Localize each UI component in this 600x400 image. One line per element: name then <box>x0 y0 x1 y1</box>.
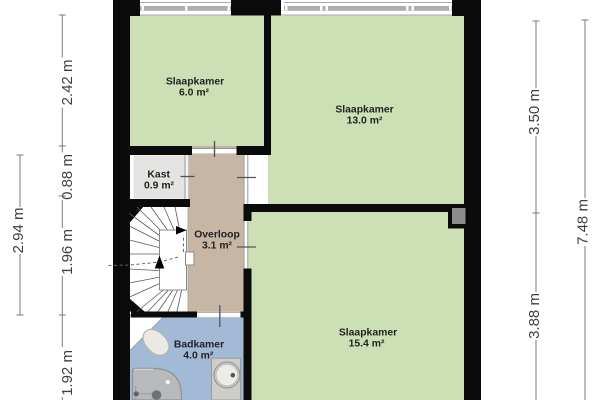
svg-text:7.48 m: 7.48 m <box>574 199 591 245</box>
svg-text:1.92 m: 1.92 m <box>59 350 76 396</box>
svg-text:15.4 m²: 15.4 m² <box>349 339 385 350</box>
svg-text:2.42 m: 2.42 m <box>59 60 76 106</box>
svg-text:Slaapkamer: Slaapkamer <box>339 328 397 339</box>
svg-text:3.50 m: 3.50 m <box>526 89 543 135</box>
svg-text:0.88 m: 0.88 m <box>59 154 76 200</box>
svg-text:0.9 m²: 0.9 m² <box>144 180 175 191</box>
svg-text:3.1 m²: 3.1 m² <box>202 240 233 251</box>
svg-text:1.96 m: 1.96 m <box>59 229 76 275</box>
svg-text:Slaapkamer: Slaapkamer <box>166 77 224 88</box>
svg-text:6.0 m²: 6.0 m² <box>179 87 210 98</box>
svg-text:13.0 m²: 13.0 m² <box>347 115 383 126</box>
svg-text:3.88 m: 3.88 m <box>526 293 543 339</box>
svg-text:2.94 m: 2.94 m <box>10 208 27 254</box>
svg-text:Badkamer: Badkamer <box>174 339 224 350</box>
svg-text:Overloop: Overloop <box>194 230 240 241</box>
svg-text:Slaapkamer: Slaapkamer <box>335 105 393 116</box>
svg-text:Kast: Kast <box>147 170 170 181</box>
svg-text:4.0 m²: 4.0 m² <box>183 350 214 361</box>
